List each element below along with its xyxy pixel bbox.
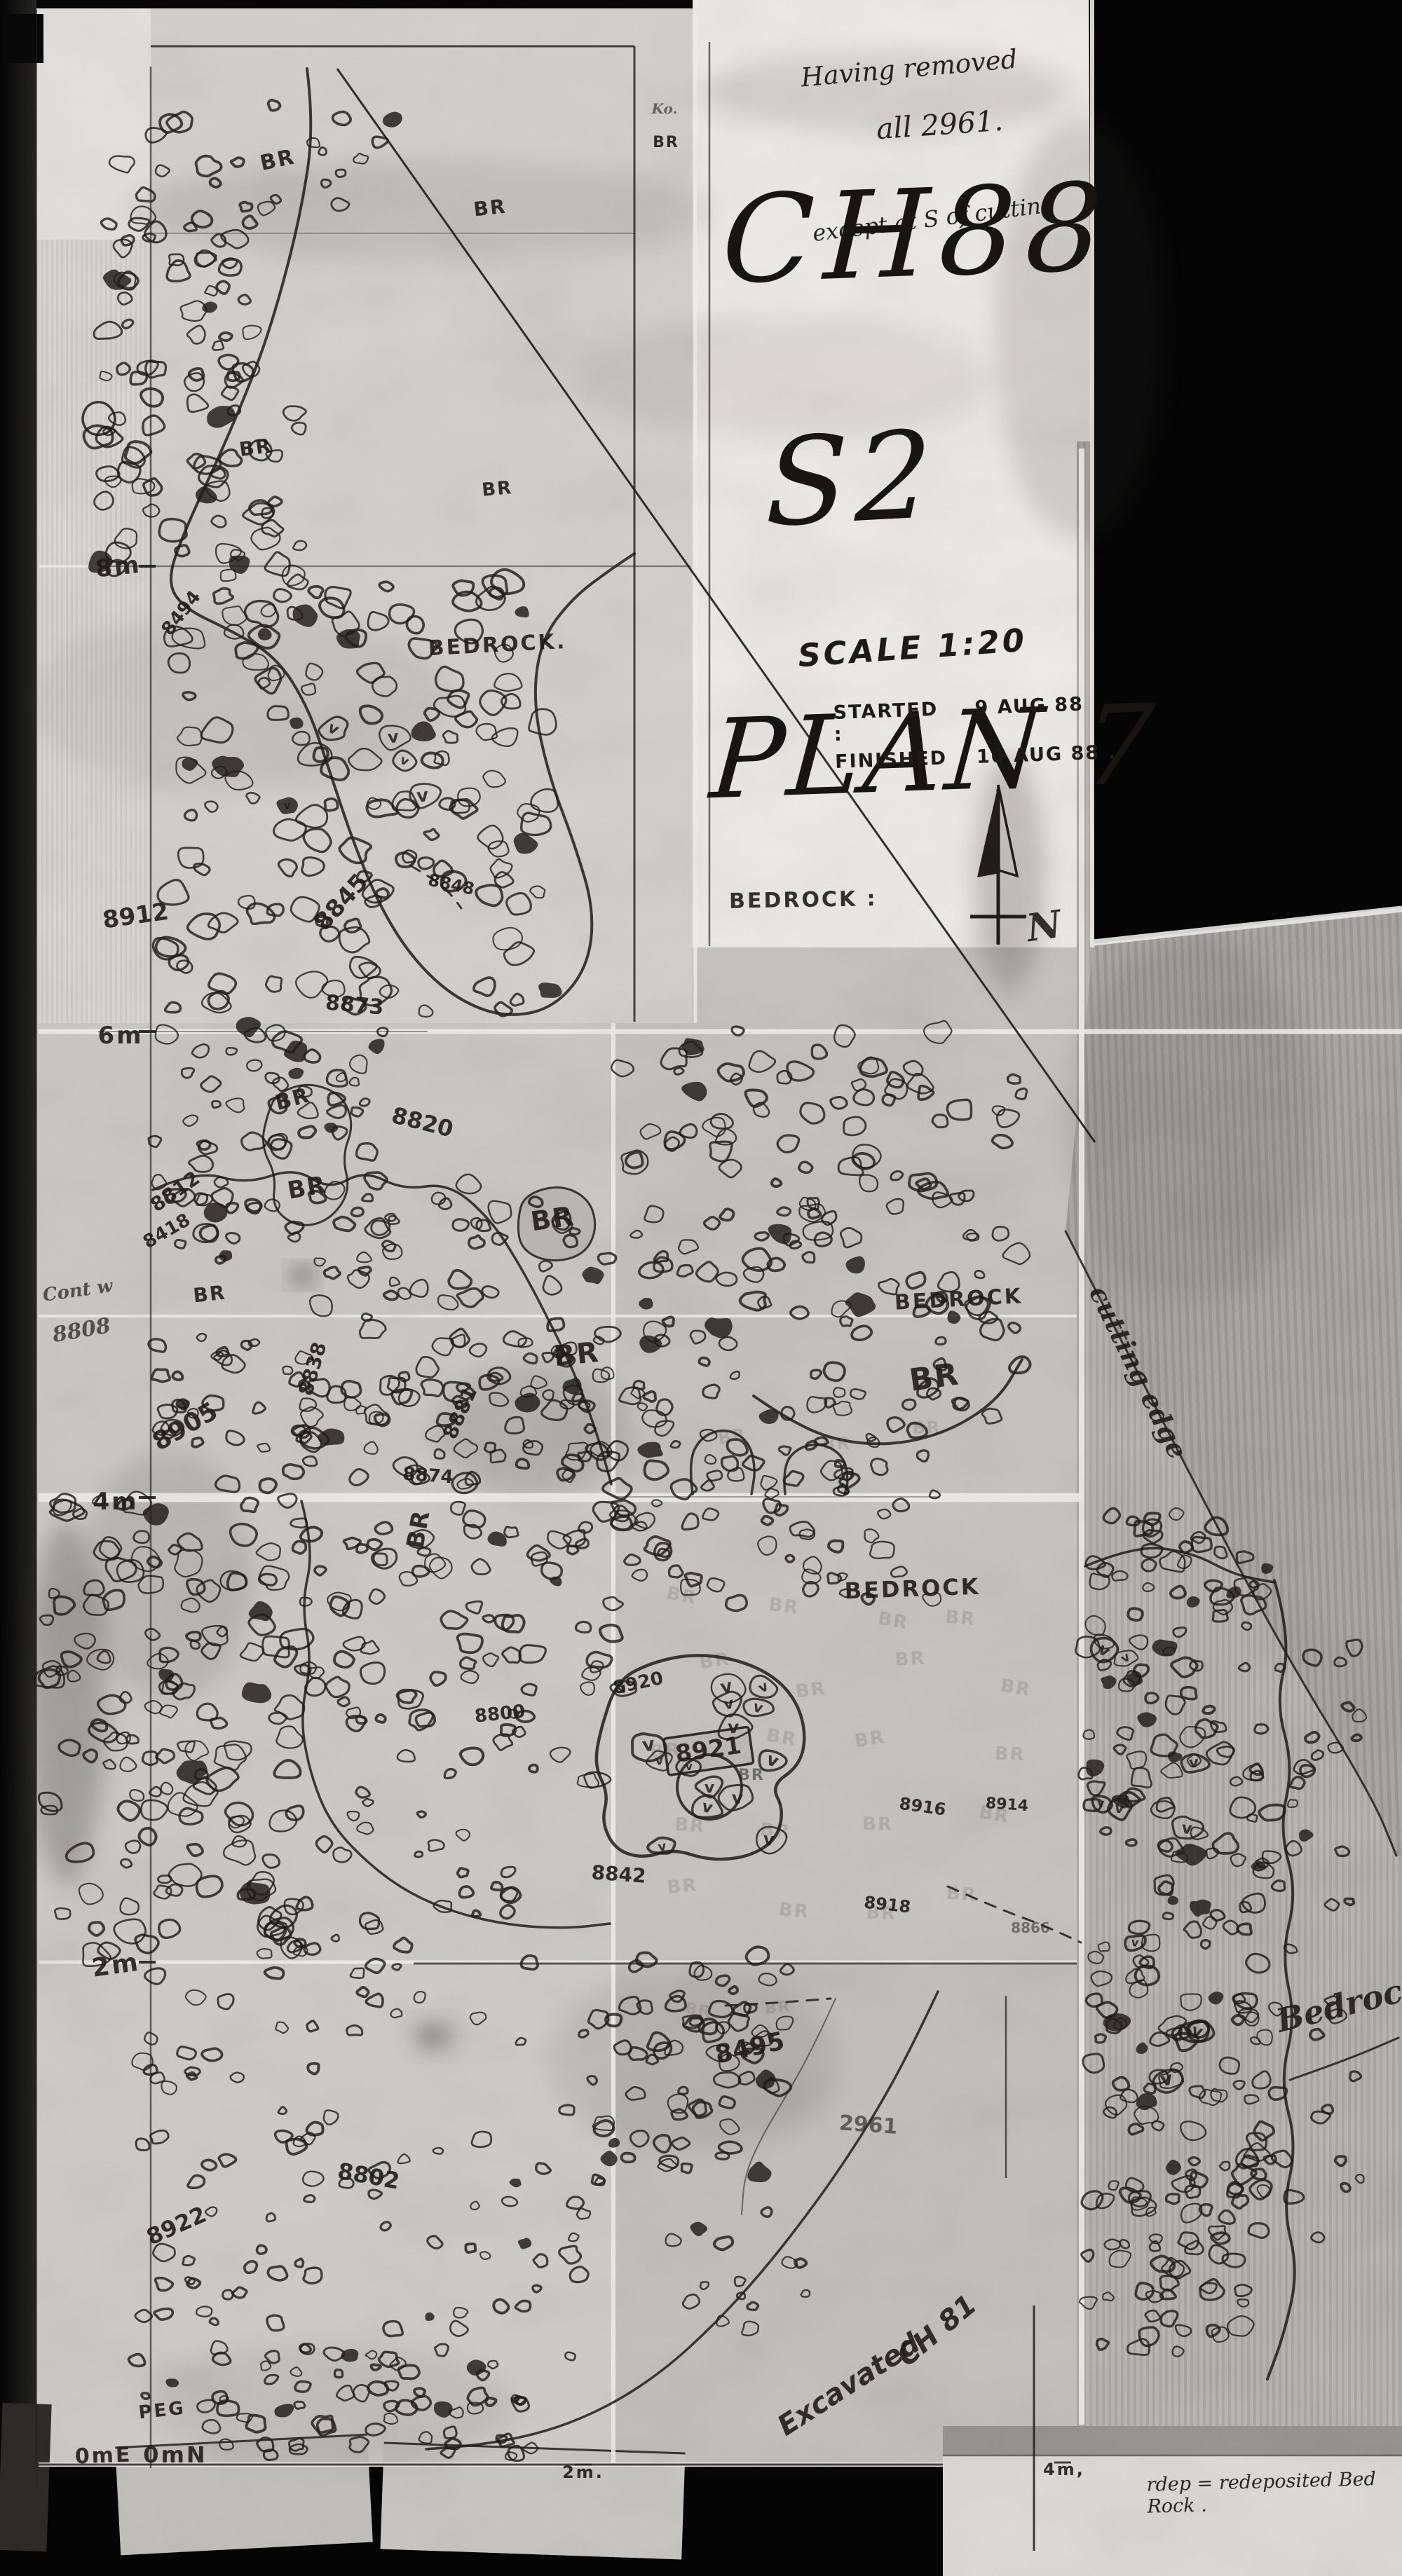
stone [705,1455,716,1464]
stone [1129,2124,1143,2135]
stone [1169,1753,1181,1761]
stone [777,1207,791,1216]
stone [1083,2054,1104,2073]
stone [338,1697,349,1706]
stone [1160,2275,1178,2290]
stone [632,1570,647,1581]
stone [530,886,545,898]
stone [1255,1725,1268,1734]
stone [639,1262,663,1277]
stone [55,1908,70,1919]
stone [799,1162,812,1172]
faint-bedrock-mark: BR [999,1676,1033,1701]
stone [334,1847,352,1862]
stone [169,1864,202,1886]
bedrock-br-label: BR [653,134,679,151]
stone [622,2153,635,2163]
stone [1160,1551,1185,1572]
faint-bedrock-mark: BR [698,1648,732,1673]
stone [1007,1074,1020,1083]
stone [369,1589,384,1604]
stone [218,1994,233,2009]
stone [301,1527,322,1541]
stone [1305,1732,1319,1743]
bedrock-br-label: BR [552,1336,601,1373]
stone [583,1268,602,1282]
stone [1128,1608,1143,1620]
stone [223,2290,233,2299]
stone [975,1270,984,1277]
stone [351,1207,363,1216]
bedrock-br-label: BR [238,434,273,461]
stone [141,389,163,406]
dip-arrow-mark: v [1188,1753,1199,1771]
stone [570,2267,588,2282]
stone [316,1837,332,1853]
stone [296,805,327,828]
stone [891,1171,903,1179]
dip-arrow-mark: v [387,727,400,748]
stone [121,1898,139,1915]
stone [350,1968,364,1978]
stone [410,1280,428,1297]
stone [94,492,113,510]
stone [339,837,371,863]
stone [184,810,196,821]
faint-bedrock-mark: BR [946,1883,977,1905]
stone [730,1371,740,1379]
faint-bedrock-mark: BR [912,1418,941,1438]
stone [184,1782,218,1806]
stone [577,2209,590,2219]
stone [268,2266,287,2280]
stone [217,281,229,294]
stone [702,1509,718,1521]
stone [214,589,233,604]
stone [644,1206,663,1222]
stone [493,928,522,950]
stone [1205,1580,1222,1591]
stone [350,1078,359,1086]
stone [516,2301,531,2311]
stone [390,605,414,624]
stone [1003,1243,1030,1264]
stone [383,1241,395,1252]
stone [304,2268,322,2283]
stone [1098,1943,1110,1952]
stone [1145,2310,1160,2322]
stone [1131,1768,1151,1788]
stone [1251,2169,1266,2179]
stone [982,1409,1002,1423]
dip-arrow-mark: v [1097,1796,1105,1809]
stone [1263,1851,1281,1863]
stone [259,1479,276,1493]
stone [1169,1897,1177,1903]
stone [353,153,368,163]
stone [1152,2121,1164,2130]
stone [840,1317,852,1327]
stone [117,363,130,375]
stone [156,1025,178,1043]
stone [291,719,301,727]
plan-annotation: Cont w [41,1275,115,1306]
stone [304,829,331,852]
stone [531,789,558,812]
bedrock-outline [754,1359,1022,1444]
stone [120,1758,136,1772]
stone [449,1270,471,1289]
plan-annotation: 8m [94,551,142,584]
stone [1117,1727,1134,1740]
stone [154,2309,172,2320]
stone [540,984,561,997]
stone [215,1744,246,1769]
stone [1312,1751,1323,1760]
stone [396,853,414,867]
stone [414,1992,426,2003]
stone [1176,2325,1191,2336]
stone [761,2207,772,2217]
stone [702,1480,714,1491]
stone [1143,1583,1154,1591]
stone [100,371,111,381]
stone [201,1076,221,1092]
stone [257,1543,280,1560]
stone [433,2148,443,2154]
stone [1217,1747,1233,1758]
stone [883,1095,895,1106]
stone [760,1411,777,1423]
stone [870,1542,894,1558]
stone [1300,1830,1312,1840]
stone [226,1098,244,1112]
stone [1180,1994,1201,2010]
stone [202,2048,222,2061]
stone [365,1920,383,1934]
stone [719,1160,742,1177]
stone [381,2222,390,2231]
stone [94,322,122,338]
stone [315,1566,326,1575]
stone [343,1637,365,1650]
stone [310,1295,332,1316]
stone [259,1566,289,1590]
stone [749,1051,775,1072]
stone [456,1174,481,1193]
stone [1335,2156,1346,2165]
stone [129,2355,145,2366]
stone [103,1760,115,1769]
stone [1102,1676,1115,1687]
stone [1223,1921,1238,1934]
stone [993,1135,1013,1149]
stone [224,1741,252,1760]
stone [1113,2077,1129,2090]
stone [183,2256,195,2265]
stone [682,1083,706,1101]
stone [1232,2195,1248,2209]
stone [362,1799,373,1807]
stone [1151,1801,1175,1818]
stone [1191,1900,1211,1916]
faint-bedrock-mark: BR [666,1875,698,1898]
stone [707,1578,724,1591]
stone [696,1262,718,1282]
stone [963,1230,977,1240]
context-number-label: 8866 [1011,1919,1050,1936]
stone [1171,1586,1185,1598]
stone [1189,2158,1200,2165]
stone [501,1867,515,1877]
stone [315,1258,325,1266]
scanned-plan-page: vvvvvvvvvvvvvvvvvvvvvvvvvvvvvBRBRBRBRBRB… [0,0,1402,2576]
stone [705,1318,731,1337]
faint-bedrock-mark: BR [768,1594,801,1619]
stone [468,2361,485,2375]
bedrock-br-label: BR [907,1356,962,1398]
stone [1127,1751,1146,1769]
stone [325,1267,340,1278]
stone [418,858,434,869]
stone [501,1888,517,1901]
stone [238,295,250,304]
stone [222,1355,245,1373]
plan-annotation: 0mE [74,2443,132,2469]
stone [522,1684,536,1695]
stone [1112,1571,1127,1581]
stone [351,1107,362,1116]
stone [458,1634,482,1653]
stone [307,2021,318,2032]
stone [240,1643,264,1661]
stone [357,1144,378,1160]
bedrock-outline [301,1501,610,1928]
stone [735,2277,745,2286]
stone [1347,1640,1362,1656]
stone [811,1370,822,1378]
plan-title-section: S2 [765,414,940,544]
stone [1345,1898,1354,1905]
stone [707,1471,722,1481]
stone [1231,1854,1246,1866]
stone [383,113,401,126]
stone [1350,2071,1361,2081]
dip-arrow-mark: v [1180,1819,1193,1839]
stone [1180,2121,1206,2140]
stone [178,848,203,868]
stone [1206,1742,1234,1765]
stone [205,2207,217,2217]
stone [172,1372,182,1381]
stone [1129,1636,1148,1650]
stone [142,2393,149,2399]
dip-arrow-mark: v [283,798,292,811]
stone [334,1652,354,1667]
stone [626,1152,643,1167]
stone [519,1645,546,1663]
stone [219,333,232,341]
stone [476,885,502,905]
stone [470,2013,486,2025]
stone [252,528,280,549]
stone [1163,1912,1173,1919]
stone [1312,2233,1325,2242]
stone [840,1228,862,1247]
date-block: STARTED : 9 AUG 88 FINISHED 10 AUG 88 . [833,692,1117,779]
stone [1173,1628,1186,1637]
stone [1120,2240,1129,2248]
stone [257,1444,270,1452]
stone [332,1935,339,1941]
stone [510,994,524,1006]
stone [285,1042,306,1061]
stone [539,1261,552,1271]
stone [1234,2284,1251,2296]
context-number-label: 8812 [146,1166,204,1217]
stone [1272,1881,1284,1891]
stone [372,137,388,148]
stone [1230,1777,1242,1786]
stone [205,802,217,812]
stone [202,2160,217,2170]
context-number-label: 8418 [139,1210,194,1253]
stone [824,1362,845,1381]
context-number-label: 8873 [325,990,385,1020]
stone [266,976,281,992]
bedrock-br-label: BR [529,1200,576,1237]
stone [1356,2174,1363,2183]
stone [187,395,208,412]
stone [450,2321,468,2336]
stone [480,2252,491,2259]
stone [226,1431,244,1446]
stone [211,1718,227,1728]
bedrock-br-label: BR [402,1507,436,1551]
stone [243,326,261,340]
stone [145,1968,165,1984]
faint-bedrock-mark: BR [862,1814,893,1835]
stone [219,450,242,466]
excavation-plan-drawing: vvvvvvvvvvvvvvvvvvvvvvvvvvvvvBRBRBRBRBRB… [0,0,1402,2576]
stone [210,2318,218,2325]
stone [247,1060,261,1071]
stone [488,2361,498,2369]
plan-annotation: Ko. [651,100,678,117]
stone [1220,2057,1239,2074]
stone [151,2130,169,2144]
stone [226,1048,237,1055]
stone [183,1115,198,1126]
stone [421,1380,443,1397]
stone [669,1566,682,1577]
plan-annotation: BEDROCK [844,1573,981,1605]
stone [177,2047,196,2060]
stone [362,1194,372,1201]
stone [207,1768,238,1791]
stone [369,1040,383,1053]
stone [245,2261,257,2273]
finished-value: 10 AUG 88 . [976,741,1117,768]
started-row: STARTED : 9 AUG 88 [833,692,1116,746]
stone [188,2175,205,2188]
stone [671,1441,680,1448]
stone [278,2107,287,2114]
stone [477,724,497,740]
stone [523,2443,538,2454]
stone [1009,1323,1021,1333]
stone [327,1105,346,1118]
stone [690,1331,705,1343]
stone [428,2236,442,2249]
stone [453,1219,468,1231]
stone [350,1469,369,1486]
stone [568,1546,578,1554]
dip-arrow-mark: v [705,1779,715,1797]
stone [224,1840,255,1865]
stone [529,709,557,735]
stone [639,1443,662,1457]
stone [1211,1910,1225,1921]
stone [1091,1971,1112,1986]
context-number-label: 8920 [611,1668,665,1699]
stone [834,1025,855,1047]
stone [833,1388,845,1397]
stone [784,1472,803,1486]
stone [167,261,190,281]
stone [461,1671,479,1683]
stone [456,1830,470,1841]
stone [1237,1551,1253,1563]
stone [342,2350,358,2361]
stone [580,1682,594,1694]
stone [719,1337,737,1350]
stone [127,1735,139,1743]
stone [714,2237,733,2249]
plan-annotation: BEDROCK. [428,629,567,661]
stone [1181,2204,1202,2223]
stone [692,2224,707,2235]
stone [533,2254,547,2268]
stone [846,1294,875,1317]
stone [720,1209,733,1220]
stone [906,1273,925,1289]
stone [192,1044,209,1057]
started-value: 9 AUG 88 [974,694,1084,741]
context-number-label: 8800 [474,1701,526,1727]
plan-annotation: BEDROCK : [729,886,878,914]
stone [259,1574,277,1585]
stone [519,2239,531,2247]
stone [1173,2346,1184,2356]
stone [307,2122,323,2135]
stone [755,1233,768,1240]
stone [1220,2162,1230,2170]
stone [143,416,165,435]
stone [465,2244,475,2252]
stone [1145,1693,1158,1703]
stone [472,1910,480,1917]
stone [156,165,170,177]
stone [461,1748,483,1765]
stone [1352,1734,1361,1741]
stone [212,341,224,350]
stone [483,771,505,788]
stone [762,1516,773,1525]
stone [740,1292,765,1310]
stone [197,1334,206,1341]
stone [1335,1847,1349,1856]
